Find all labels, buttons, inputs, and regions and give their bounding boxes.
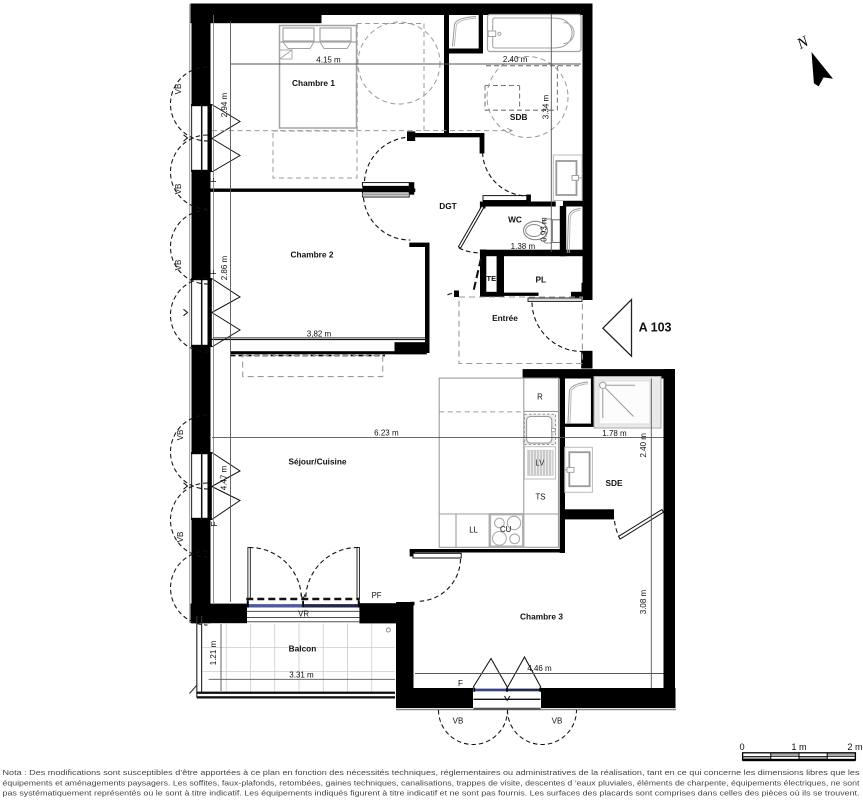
svg-text:Séjour/Cuisine: Séjour/Cuisine — [288, 457, 346, 467]
svg-text:3.08 m: 3.08 m — [639, 589, 648, 614]
svg-text:F: F — [210, 521, 219, 526]
svg-text:2 m: 2 m — [847, 742, 863, 752]
svg-text:Balcon: Balcon — [289, 644, 317, 654]
svg-text:0: 0 — [739, 742, 744, 752]
svg-text:Chambre 2: Chambre 2 — [291, 250, 334, 260]
svg-text:Entrée: Entrée — [492, 313, 518, 323]
svg-text:1 m: 1 m — [791, 742, 807, 752]
svg-text:R: R — [537, 393, 543, 402]
svg-text:LL: LL — [469, 526, 478, 535]
svg-text:DGT: DGT — [439, 201, 457, 211]
svg-text:Chambre 3: Chambre 3 — [520, 612, 563, 622]
svg-text:PF: PF — [372, 591, 382, 600]
svg-text:LV: LV — [535, 459, 545, 468]
svg-text:2.94 m: 2.94 m — [220, 92, 229, 117]
svg-text:TE: TE — [486, 274, 496, 283]
svg-text:SDB: SDB — [510, 112, 528, 122]
svg-text:Nota : Des modifications sont: Nota : Des modifications sont susceptibl… — [3, 768, 860, 777]
svg-text:0.93 m: 0.93 m — [539, 217, 548, 242]
svg-text:CU: CU — [500, 525, 512, 534]
svg-text:F: F — [458, 679, 463, 688]
svg-text:pas systématiquement représent: pas systématiquement représentés ou le s… — [3, 788, 860, 797]
svg-text:Chambre 1: Chambre 1 — [292, 78, 335, 88]
svg-text:2.86 m: 2.86 m — [220, 255, 229, 280]
svg-text:1.21 m: 1.21 m — [209, 640, 218, 665]
svg-text:F: F — [209, 269, 218, 274]
svg-text:VB: VB — [552, 717, 563, 726]
svg-text:équipements et aménagements pa: équipements et aménagements paysagers. L… — [3, 778, 860, 787]
svg-text:3,82 m: 3,82 m — [307, 329, 332, 338]
svg-text:SDE: SDE — [605, 478, 623, 488]
svg-text:1.78 m: 1.78 m — [602, 429, 627, 438]
svg-text:2.40 m: 2.40 m — [503, 55, 528, 64]
svg-text:VR: VR — [298, 610, 309, 619]
svg-text:F: F — [209, 177, 218, 182]
svg-text:4.46 m: 4.46 m — [527, 664, 552, 673]
svg-text:VB: VB — [174, 260, 183, 271]
svg-text:VB: VB — [176, 430, 185, 441]
svg-text:PL: PL — [535, 275, 546, 285]
svg-text:4.15 m: 4.15 m — [316, 55, 341, 64]
svg-text:1.38 m: 1.38 m — [511, 242, 536, 251]
svg-text:VB: VB — [174, 184, 183, 195]
svg-text:WC: WC — [508, 215, 522, 225]
svg-text:A 103: A 103 — [639, 321, 672, 335]
svg-text:4.47 m: 4.47 m — [220, 465, 229, 490]
svg-text:6.23 m: 6.23 m — [374, 429, 399, 438]
svg-text:3.31 m: 3.31 m — [289, 671, 314, 680]
svg-text:VB: VB — [174, 84, 183, 95]
svg-text:VB: VB — [453, 717, 464, 726]
svg-text:2.40 m: 2.40 m — [639, 433, 648, 458]
svg-text:VB: VB — [176, 532, 185, 543]
svg-text:3.34 m: 3.34 m — [541, 94, 550, 119]
svg-text:TS: TS — [536, 493, 546, 502]
